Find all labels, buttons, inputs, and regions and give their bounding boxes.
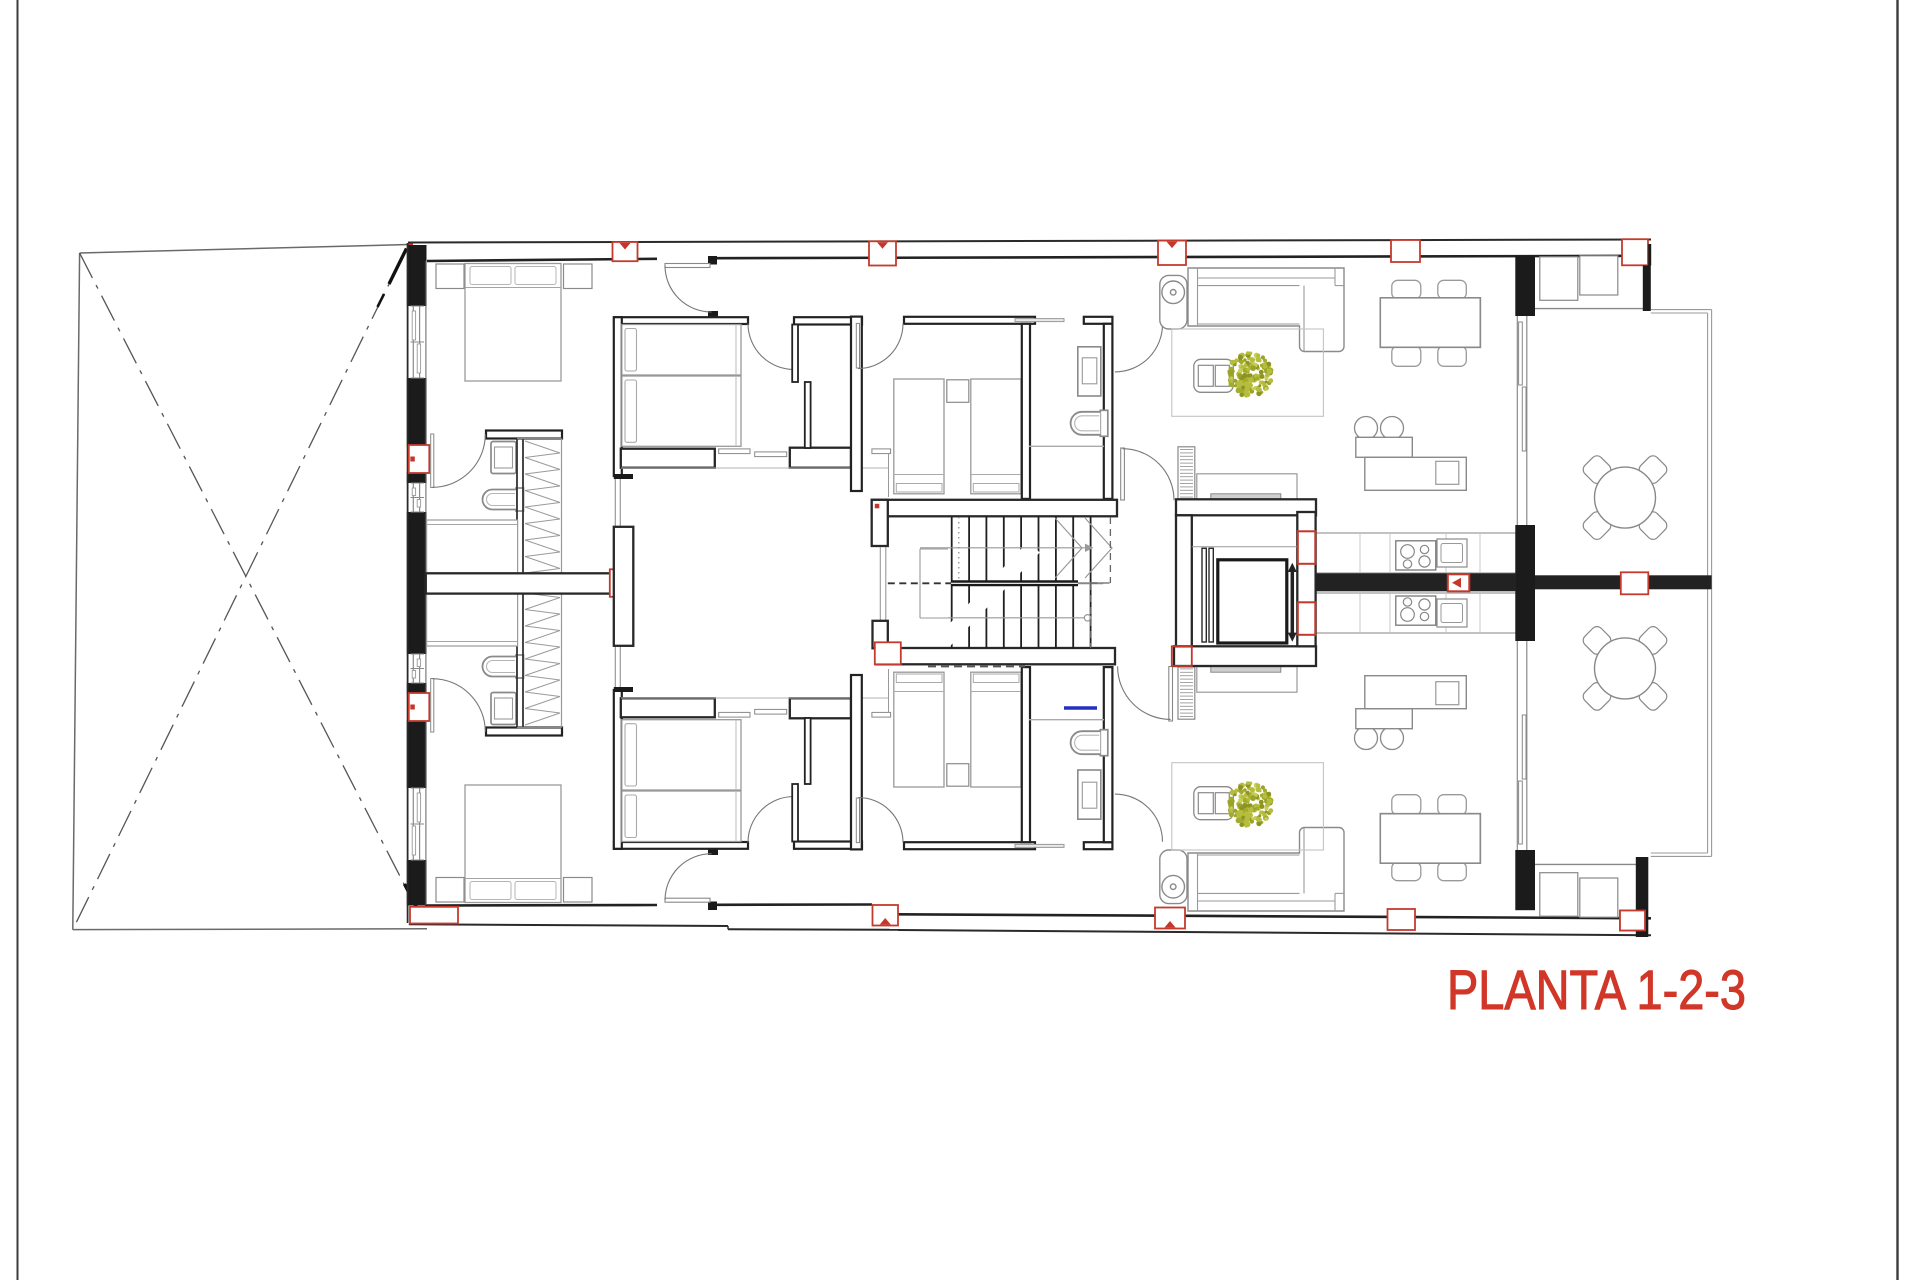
svg-text:PLANTA 1-2-3: PLANTA 1-2-3	[1447, 958, 1746, 1021]
